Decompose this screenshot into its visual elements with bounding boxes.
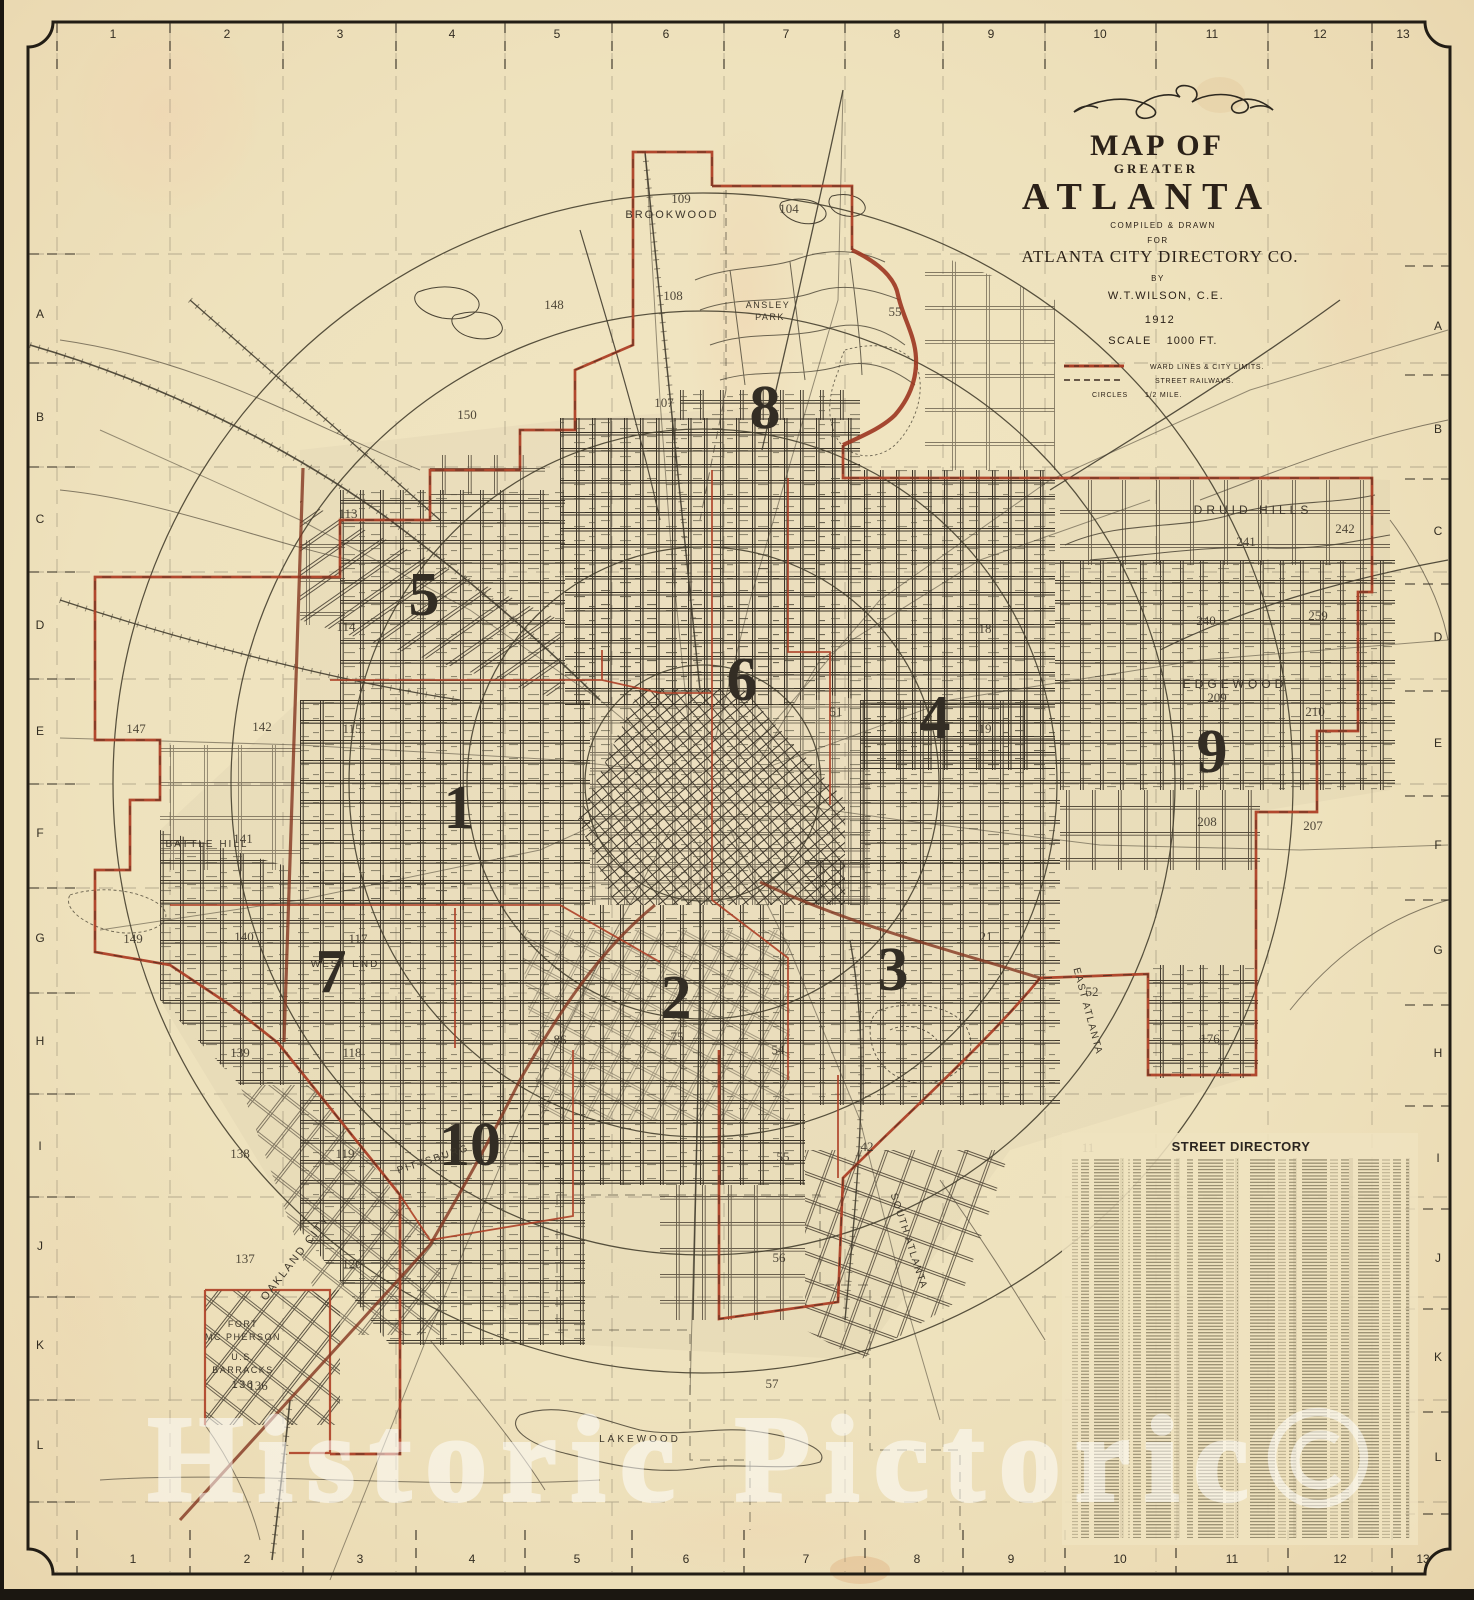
svg-text:ATLANTA CITY DIRECTORY CO.: ATLANTA CITY DIRECTORY CO. <box>1021 247 1298 266</box>
svg-text:ANSLEY: ANSLEY <box>746 300 791 310</box>
svg-text:117: 117 <box>348 931 368 946</box>
svg-text:9: 9 <box>1197 718 1228 786</box>
svg-text:86: 86 <box>554 1032 568 1047</box>
svg-text:8: 8 <box>750 374 781 442</box>
svg-text:18: 18 <box>979 621 992 636</box>
svg-text:208: 208 <box>1197 814 1217 829</box>
svg-text:150: 150 <box>457 407 477 422</box>
svg-text:K: K <box>36 1338 44 1352</box>
svg-text:1/2 MILE.: 1/2 MILE. <box>1145 392 1182 399</box>
svg-text:CIRCLES: CIRCLES <box>1092 392 1128 399</box>
svg-text:11: 11 <box>1206 27 1219 41</box>
svg-text:6: 6 <box>663 27 670 41</box>
svg-text:GREATER: GREATER <box>1114 161 1198 176</box>
svg-text:I: I <box>1436 1151 1439 1165</box>
svg-text:5: 5 <box>574 1552 581 1566</box>
svg-text:WARD LINES & CITY LIMITS.: WARD LINES & CITY LIMITS. <box>1150 364 1264 371</box>
svg-text:W.T.WILSON, C.E.: W.T.WILSON, C.E. <box>1108 290 1224 302</box>
svg-text:11: 11 <box>1226 1552 1239 1566</box>
svg-text:5: 5 <box>409 561 440 629</box>
svg-text:PARK: PARK <box>755 312 785 322</box>
svg-text:D: D <box>36 618 45 632</box>
svg-text:176: 176 <box>1200 1031 1220 1046</box>
svg-text:140: 140 <box>234 929 254 944</box>
svg-text:42: 42 <box>861 1139 874 1154</box>
svg-text:13: 13 <box>1396 27 1410 41</box>
svg-text:55: 55 <box>777 1149 790 1164</box>
svg-text:8: 8 <box>894 27 901 41</box>
svg-text:104: 104 <box>779 201 799 216</box>
svg-text:108: 108 <box>663 288 683 303</box>
svg-text:137: 137 <box>235 1251 255 1266</box>
svg-text:2: 2 <box>224 27 231 41</box>
svg-text:241: 241 <box>1236 534 1256 549</box>
svg-text:242: 242 <box>1335 521 1355 536</box>
svg-text:10: 10 <box>1113 1552 1127 1566</box>
svg-text:10: 10 <box>439 1111 501 1179</box>
svg-text:113: 113 <box>338 506 357 521</box>
svg-text:MC PHERSON: MC PHERSON <box>205 1332 281 1342</box>
svg-text:147: 147 <box>126 721 146 736</box>
svg-text:STREET DIRECTORY: STREET DIRECTORY <box>1172 1139 1311 1154</box>
svg-text:EDGEWOOD: EDGEWOOD <box>1183 677 1288 691</box>
svg-text:C: C <box>36 512 45 526</box>
svg-text:K: K <box>1434 1350 1442 1364</box>
svg-text:7: 7 <box>803 1552 810 1566</box>
svg-text:12: 12 <box>1333 1552 1347 1566</box>
svg-text:D: D <box>1434 630 1443 644</box>
svg-text:SCALE: SCALE <box>1108 335 1152 347</box>
svg-text:U.S.: U.S. <box>231 1352 255 1362</box>
svg-text:F: F <box>36 826 43 840</box>
svg-text:209: 209 <box>1207 690 1227 705</box>
svg-text:3: 3 <box>337 27 344 41</box>
svg-text:54: 54 <box>772 1042 786 1057</box>
svg-text:DRUID HILLS: DRUID HILLS <box>1194 503 1313 517</box>
svg-text:F: F <box>1434 838 1441 852</box>
svg-text:138: 138 <box>230 1146 250 1161</box>
svg-text:120: 120 <box>342 1256 362 1271</box>
svg-text:G: G <box>1433 943 1442 957</box>
svg-text:207: 207 <box>1303 818 1323 833</box>
svg-text:9: 9 <box>1008 1552 1015 1566</box>
svg-text:57: 57 <box>766 1376 780 1391</box>
svg-text:148: 148 <box>544 297 564 312</box>
svg-text:10: 10 <box>1093 27 1107 41</box>
svg-text:4: 4 <box>449 27 456 41</box>
svg-text:136: 136 <box>232 1379 255 1391</box>
svg-text:7: 7 <box>316 938 347 1006</box>
svg-text:75: 75 <box>671 1029 684 1044</box>
svg-text:9: 9 <box>988 27 995 41</box>
svg-text:56: 56 <box>773 1250 787 1265</box>
svg-text:4: 4 <box>469 1552 476 1566</box>
svg-text:6: 6 <box>683 1552 690 1566</box>
svg-text:1: 1 <box>444 774 475 842</box>
svg-text:E: E <box>1434 736 1442 750</box>
svg-text:2: 2 <box>244 1552 251 1566</box>
svg-text:FOR: FOR <box>1147 236 1168 245</box>
svg-text:259: 259 <box>1308 608 1328 623</box>
svg-text:2: 2 <box>661 964 692 1032</box>
svg-text:4: 4 <box>920 684 951 752</box>
svg-text:21: 21 <box>980 929 993 944</box>
svg-text:J: J <box>37 1239 43 1253</box>
svg-text:240: 240 <box>1196 613 1216 628</box>
svg-text:B: B <box>1434 422 1442 436</box>
svg-text:FORT: FORT <box>228 1319 258 1329</box>
svg-text:WEST END: WEST END <box>311 959 380 970</box>
svg-text:1000 FT.: 1000 FT. <box>1167 335 1218 347</box>
svg-text:A: A <box>1434 319 1442 333</box>
svg-text:Historic Pictoric: Historic Pictoric <box>148 1392 1248 1527</box>
svg-text:BARRACKS: BARRACKS <box>212 1365 274 1375</box>
svg-text:107: 107 <box>654 395 674 410</box>
svg-text:55: 55 <box>889 304 902 319</box>
svg-text:G: G <box>35 931 44 945</box>
svg-text:ATLANTA: ATLANTA <box>1022 176 1272 218</box>
svg-text:3: 3 <box>357 1552 364 1566</box>
svg-text:8: 8 <box>914 1552 921 1566</box>
svg-text:COMPILED & DRAWN: COMPILED & DRAWN <box>1110 221 1216 230</box>
svg-text:MAP OF: MAP OF <box>1090 129 1224 162</box>
svg-text:BY: BY <box>1151 274 1165 283</box>
svg-text:1: 1 <box>110 27 117 41</box>
svg-text:13: 13 <box>1416 1552 1430 1566</box>
svg-text:L: L <box>37 1438 44 1452</box>
svg-text:B: B <box>36 410 44 424</box>
svg-text:149: 149 <box>123 931 143 946</box>
svg-text:19: 19 <box>979 721 992 736</box>
svg-text:118: 118 <box>342 1045 361 1060</box>
svg-text:210: 210 <box>1305 704 1325 719</box>
svg-text:L: L <box>1435 1450 1442 1464</box>
svg-text:BATTLE HILL: BATTLE HILL <box>166 839 249 850</box>
svg-text:109: 109 <box>671 191 691 206</box>
svg-text:I: I <box>38 1139 41 1153</box>
svg-text:H: H <box>1434 1046 1443 1060</box>
svg-text:A: A <box>36 307 44 321</box>
svg-text:119: 119 <box>335 1146 354 1161</box>
svg-text:7: 7 <box>783 27 790 41</box>
svg-text:E: E <box>36 724 44 738</box>
svg-text:6: 6 <box>727 646 758 714</box>
svg-text:51: 51 <box>830 704 843 719</box>
svg-text:H: H <box>36 1034 45 1048</box>
svg-text:142: 142 <box>252 719 272 734</box>
svg-text:12: 12 <box>1313 27 1327 41</box>
svg-text:115: 115 <box>342 721 361 736</box>
svg-text:J: J <box>1435 1251 1441 1265</box>
svg-text:3: 3 <box>878 936 909 1004</box>
svg-text:C: C <box>1434 524 1443 538</box>
svg-text:5: 5 <box>554 27 561 41</box>
svg-text:STREET RAILWAYS.: STREET RAILWAYS. <box>1155 378 1234 385</box>
svg-text:BROOKWOOD: BROOKWOOD <box>625 209 718 221</box>
svg-text:139: 139 <box>230 1045 250 1060</box>
svg-text:1: 1 <box>130 1552 137 1566</box>
svg-text:114: 114 <box>336 619 356 634</box>
svg-text:1912: 1912 <box>1145 314 1175 326</box>
